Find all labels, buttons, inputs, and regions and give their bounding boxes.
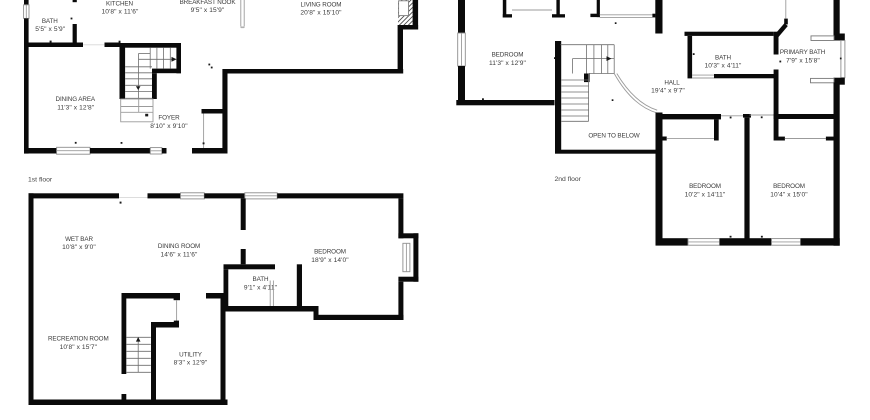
svg-text:2nd floor: 2nd floor — [555, 176, 582, 183]
svg-text:BATH: BATH — [253, 276, 269, 283]
svg-text:FOYER: FOYER — [158, 115, 180, 122]
svg-text:BEDROOM: BEDROOM — [689, 183, 721, 190]
svg-text:WET BAR: WET BAR — [65, 236, 93, 243]
svg-text:8'3" x 12'9": 8'3" x 12'9" — [174, 360, 208, 367]
svg-text:BATH: BATH — [715, 54, 731, 61]
svg-text:LIVING ROOM: LIVING ROOM — [301, 2, 342, 9]
svg-text:BREAKFAST NOOK: BREAKFAST NOOK — [180, 0, 237, 6]
svg-text:UTILITY: UTILITY — [179, 352, 203, 359]
svg-text:10'8" x 11'6": 10'8" x 11'6" — [102, 9, 140, 16]
svg-text:18'9" x 14'0": 18'9" x 14'0" — [311, 257, 349, 264]
svg-text:9'5" x 15'9": 9'5" x 15'9" — [191, 7, 225, 14]
svg-text:KITCHEN: KITCHEN — [106, 1, 133, 8]
svg-text:10'4" x 15'0": 10'4" x 15'0" — [770, 191, 808, 198]
svg-text:10'8" x 9'0": 10'8" x 9'0" — [62, 244, 96, 251]
svg-text:BEDROOM: BEDROOM — [492, 51, 524, 58]
svg-text:19'4" x 9'7": 19'4" x 9'7" — [651, 88, 685, 95]
svg-text:BEDROOM: BEDROOM — [773, 183, 805, 190]
svg-text:PRIMARY BATH: PRIMARY BATH — [780, 49, 826, 56]
svg-text:10'8" x 15'7": 10'8" x 15'7" — [60, 344, 98, 351]
svg-text:11'3" x 12'8": 11'3" x 12'8" — [57, 104, 95, 111]
svg-text:8'10" x 9'10": 8'10" x 9'10" — [150, 123, 188, 130]
svg-text:DINING AREA: DINING AREA — [56, 96, 96, 103]
svg-text:BEDROOM: BEDROOM — [314, 249, 346, 256]
svg-text:10'3" x 4'11": 10'3" x 4'11" — [705, 63, 743, 70]
svg-text:BATH: BATH — [42, 18, 58, 25]
svg-text:9'1" x 4'11": 9'1" x 4'11" — [244, 284, 278, 291]
svg-text:14'6" x 11'6": 14'6" x 11'6" — [161, 251, 199, 258]
svg-text:OPEN TO BELOW: OPEN TO BELOW — [588, 132, 639, 139]
svg-text:11'3" x 12'9": 11'3" x 12'9" — [489, 60, 527, 67]
svg-text:1st floor: 1st floor — [28, 177, 53, 184]
svg-text:DINING ROOM: DINING ROOM — [158, 243, 200, 250]
svg-text:10'2" x 14'11": 10'2" x 14'11" — [685, 191, 726, 198]
svg-text:5'5" x 5'9": 5'5" x 5'9" — [35, 26, 65, 33]
svg-text:HALL: HALL — [664, 79, 680, 86]
svg-text:20'8" x 15'10": 20'8" x 15'10" — [300, 9, 342, 16]
svg-text:7'9" x 15'8": 7'9" x 15'8" — [786, 58, 820, 65]
svg-text:RECREATION ROOM: RECREATION ROOM — [48, 335, 109, 342]
